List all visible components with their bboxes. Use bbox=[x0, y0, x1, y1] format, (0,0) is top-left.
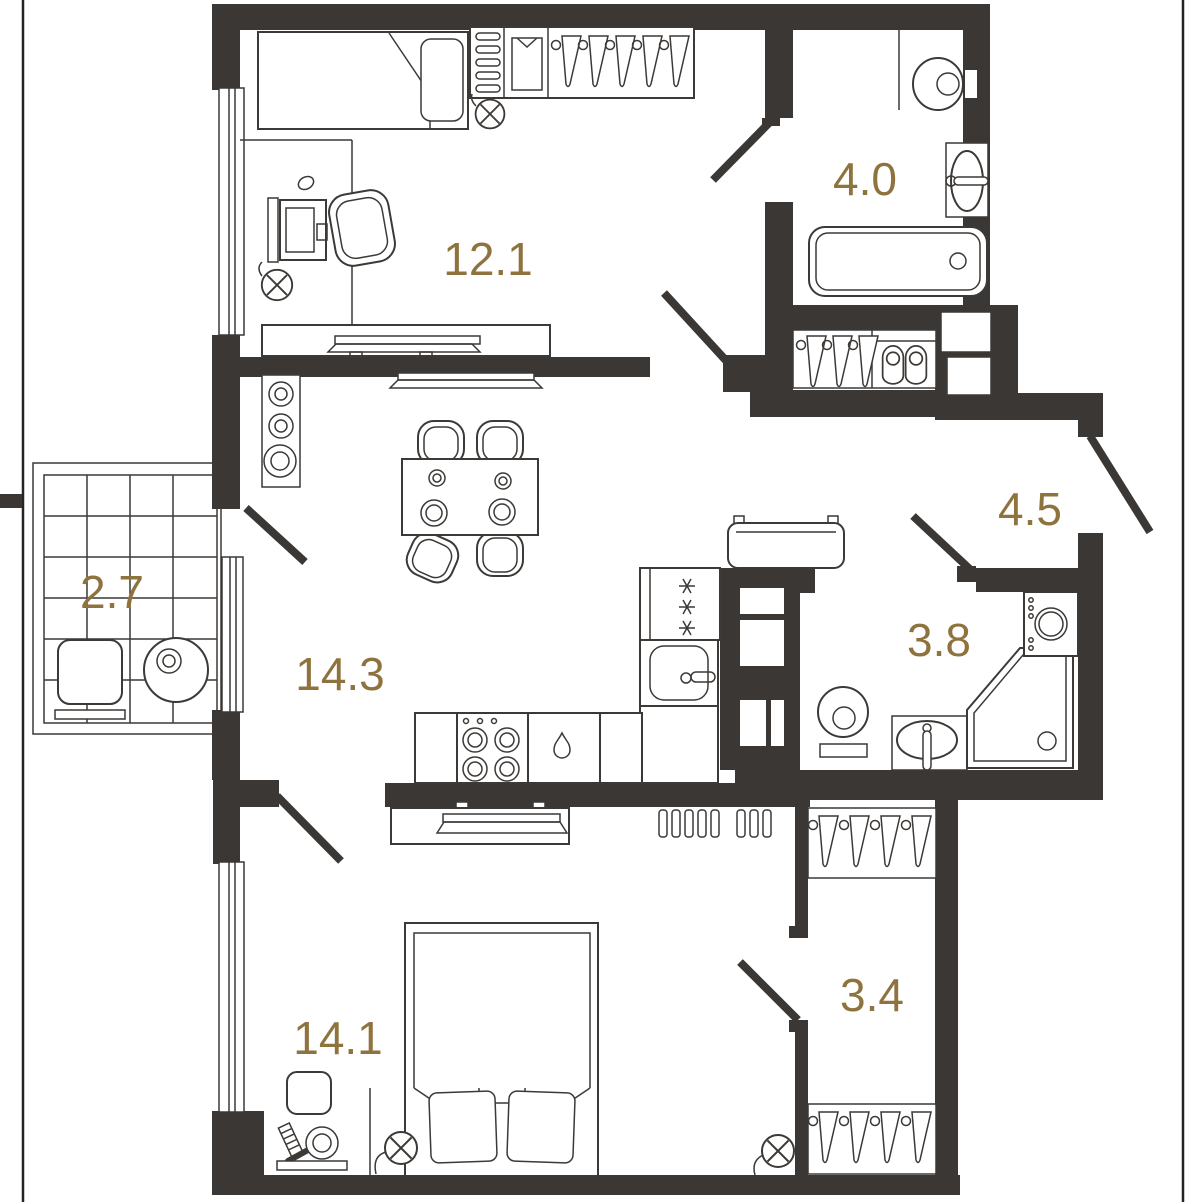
sofa-bench bbox=[728, 516, 844, 568]
single-bed bbox=[258, 32, 468, 129]
window-bedroom-2 bbox=[219, 862, 244, 1112]
kitchen-sink bbox=[640, 640, 718, 706]
kitchen-cabinet bbox=[415, 713, 457, 783]
room-label-bedroom-1: 12.1 bbox=[443, 233, 533, 285]
room-label-balcony: 2.7 bbox=[80, 566, 144, 618]
kitchen-corner-cabinet bbox=[640, 706, 718, 783]
nightstand bbox=[287, 1072, 331, 1114]
kitchen-cabinet bbox=[600, 713, 642, 783]
fridge bbox=[640, 568, 720, 640]
hallway-closet bbox=[793, 330, 936, 388]
room-label-ensuite: 4.0 bbox=[833, 153, 897, 205]
room-label-hallway: 4.5 bbox=[998, 483, 1062, 535]
dishwasher bbox=[528, 713, 600, 783]
background bbox=[0, 0, 1202, 1202]
double-bed bbox=[405, 923, 598, 1176]
dining-table bbox=[402, 459, 538, 535]
toilet bbox=[913, 58, 963, 110]
stove bbox=[457, 713, 528, 783]
window-balcony-door bbox=[222, 557, 243, 712]
bathtub bbox=[809, 227, 987, 296]
toilet bbox=[818, 687, 868, 757]
vanity-shelf bbox=[277, 1161, 347, 1170]
dresser-with-tv bbox=[262, 325, 550, 356]
wall-shelf-unit bbox=[262, 375, 300, 487]
dining-chair bbox=[477, 532, 523, 576]
washbasin bbox=[946, 143, 988, 217]
room-label-closet: 3.4 bbox=[840, 969, 904, 1021]
desk-chair bbox=[326, 187, 398, 268]
room-label-bathroom: 3.8 bbox=[907, 614, 971, 666]
washing-machine bbox=[1024, 592, 1078, 656]
room-label-bedroom-2: 14.1 bbox=[293, 1012, 383, 1064]
floor-plan-drawing: 12.1 4.0 2.7 14.3 4.5 3.8 3.4 14.1 bbox=[0, 0, 1202, 1202]
floor-plan: 12.1 4.0 2.7 14.3 4.5 3.8 3.4 14.1 bbox=[0, 0, 1202, 1202]
room-label-living: 14.3 bbox=[295, 648, 385, 700]
wardrobe-bedroom-1 bbox=[470, 27, 694, 98]
balcony-table bbox=[144, 638, 208, 702]
washbasin bbox=[892, 716, 967, 770]
window-bedroom-1 bbox=[219, 88, 244, 335]
tv-console bbox=[391, 802, 569, 844]
